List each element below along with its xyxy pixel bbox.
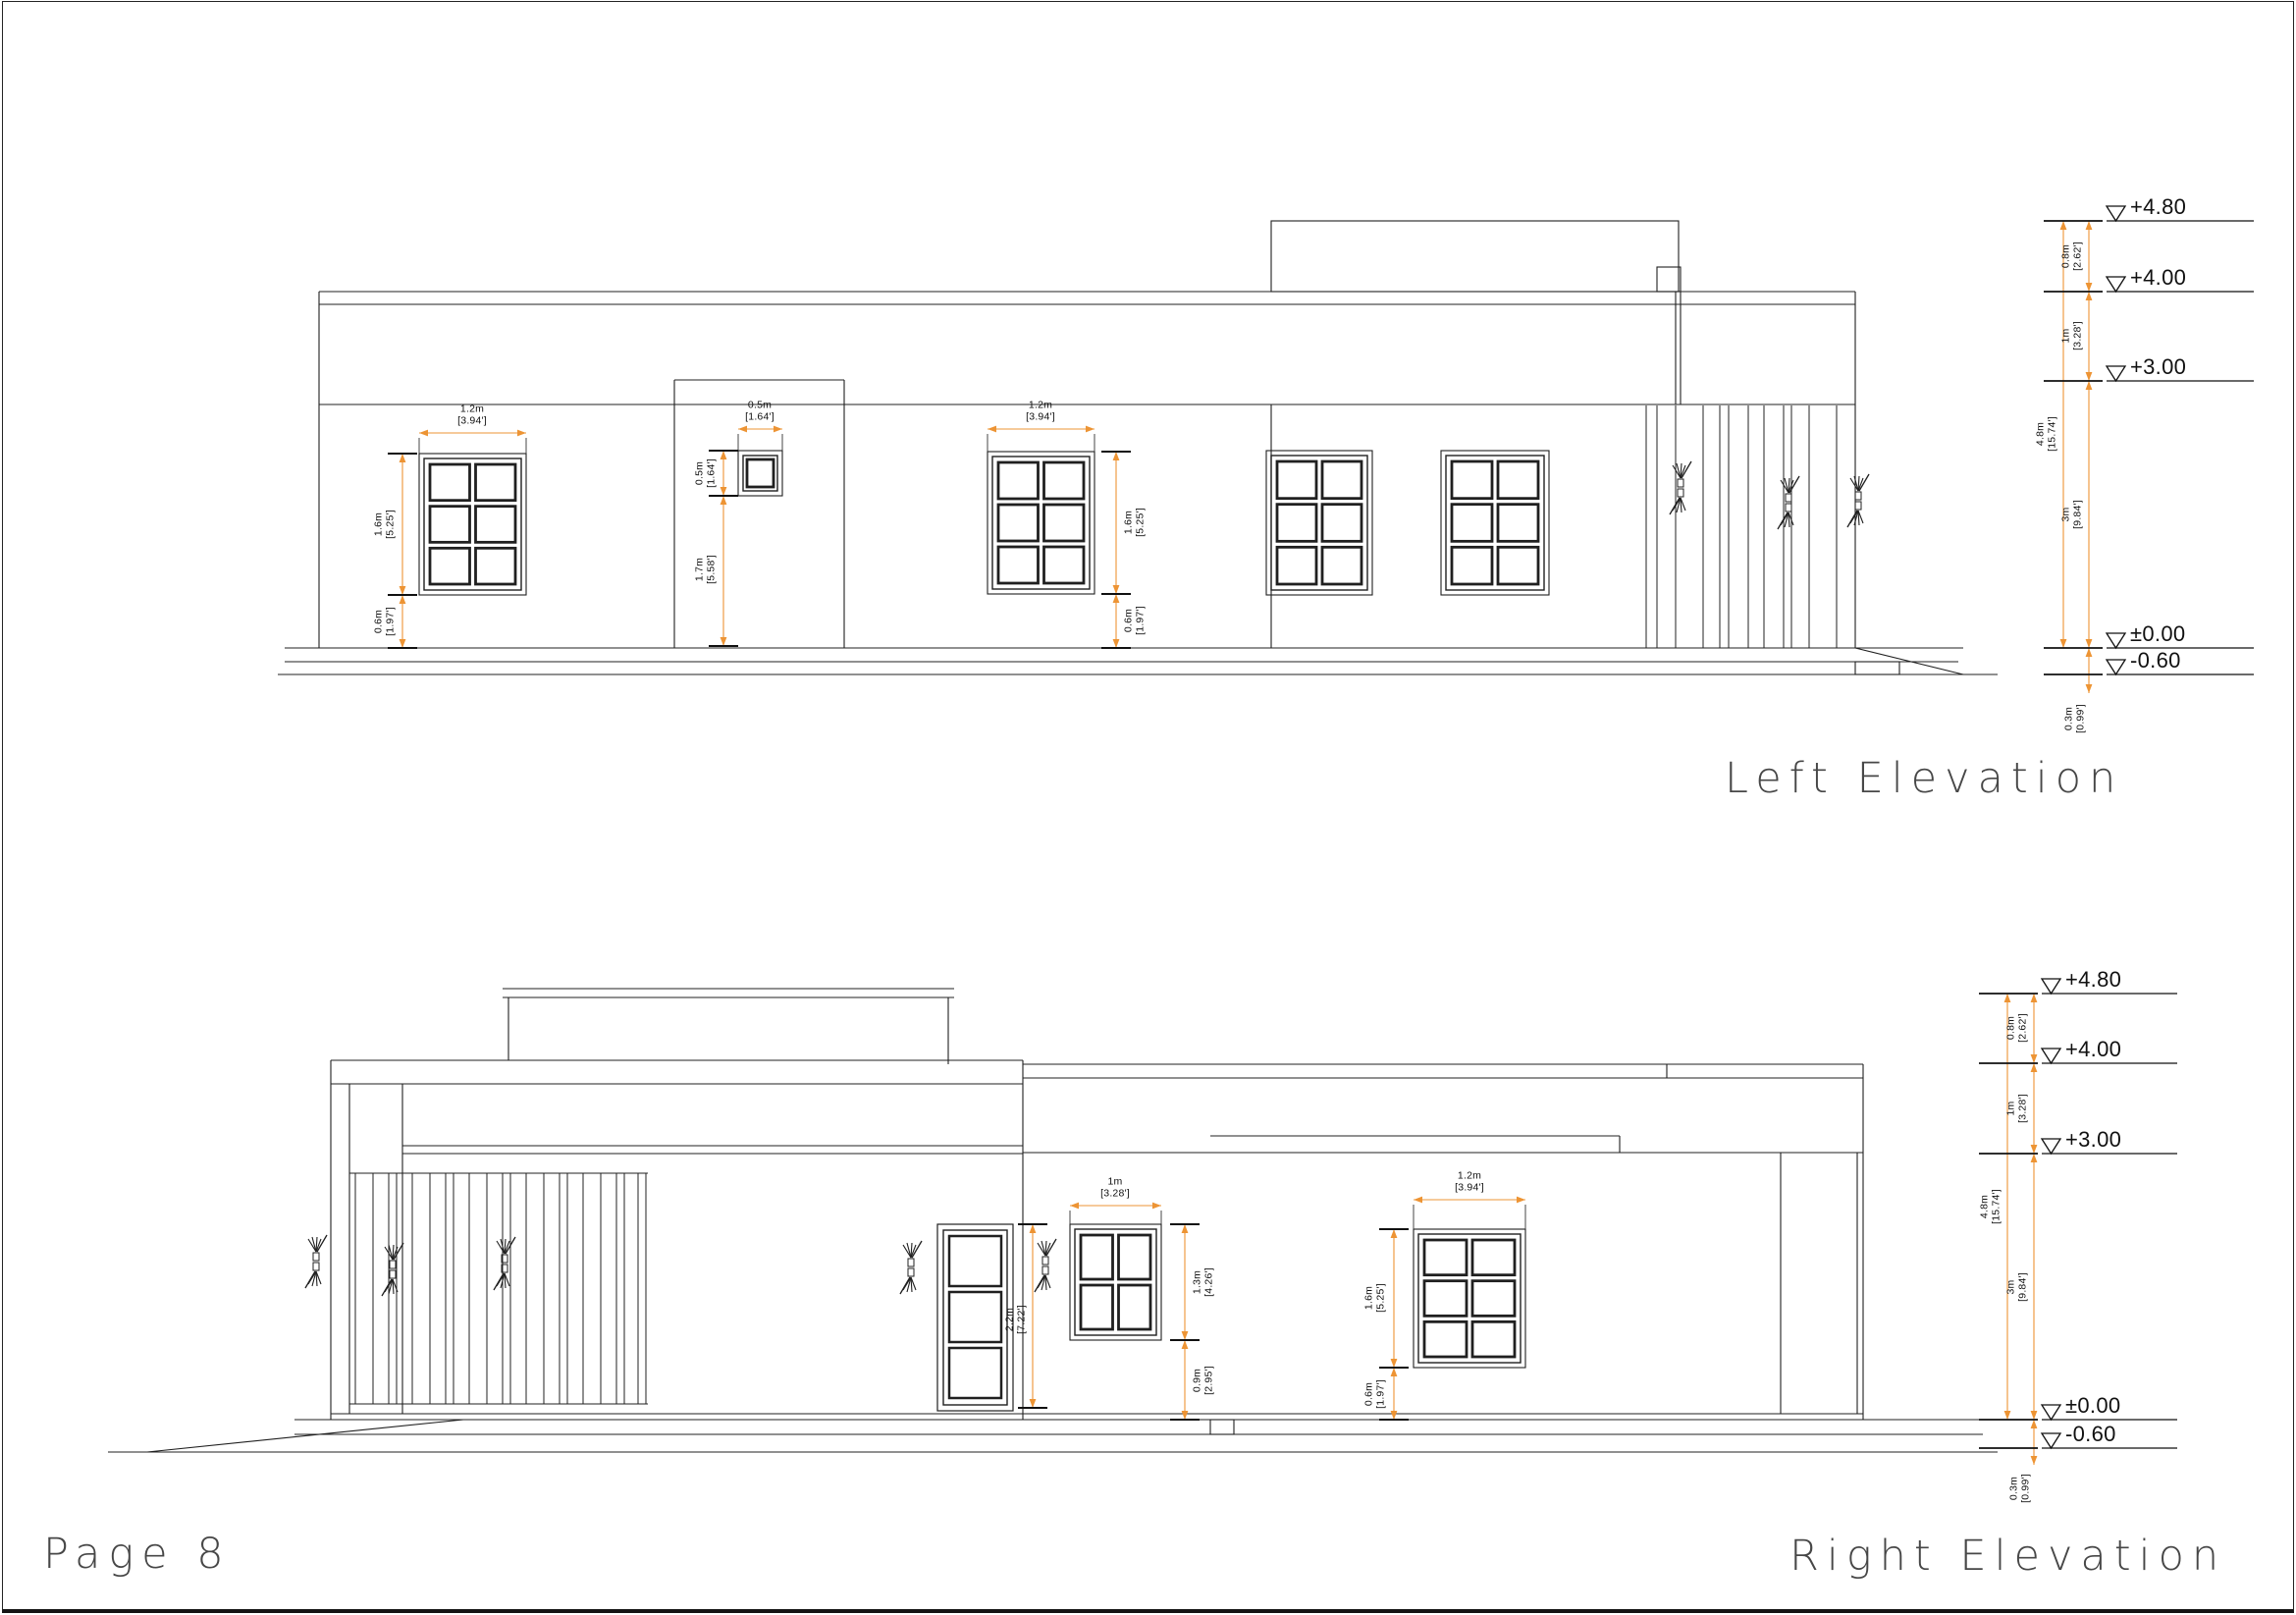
dim-value-ft: [3.94']	[1026, 411, 1055, 423]
dimension-label: 1m[3.28']	[1100, 1176, 1130, 1200]
dim-value-m: 1.2m	[457, 404, 487, 415]
dim-value-m: 1m	[2005, 1094, 2017, 1123]
level-label: +4.80	[2065, 967, 2121, 993]
dim-value-m: 3m	[2005, 1272, 2017, 1302]
dimension-label: 0.8m[2.62']	[2005, 1013, 2029, 1043]
dim-value-m: 0.8m	[2005, 1013, 2017, 1043]
dim-value-ft: [9.84']	[2072, 500, 2084, 529]
dimension-label: 1m[3.28']	[2060, 321, 2084, 350]
dim-value-ft: [2.62']	[2072, 242, 2084, 271]
dimension-label: 0.5m[1.64']	[745, 400, 774, 423]
dimension-label: 0.6m[1.97']	[1363, 1379, 1387, 1409]
dim-value-ft: [5.25']	[1135, 508, 1147, 537]
dim-value-ft: [15.74']	[1991, 1189, 2002, 1224]
right-elevation-title: Right Elevation	[1789, 1532, 2226, 1581]
dim-value-m: 0.5m	[745, 400, 774, 411]
dim-value-ft: [3.94']	[1455, 1182, 1484, 1194]
dim-value-m: 1m	[2060, 321, 2072, 350]
dim-value-m: 0.9m	[1192, 1366, 1203, 1395]
dim-value-ft: [2.95']	[1203, 1366, 1215, 1395]
dimension-label: 1.2m[3.94']	[1026, 400, 1055, 423]
dimension-label: 0.5m[1.64']	[694, 458, 718, 488]
dim-value-ft: [1.97']	[1135, 606, 1147, 635]
dim-value-m: 1.6m	[1123, 508, 1135, 537]
level-label: +4.00	[2130, 265, 2186, 291]
dim-value-m: 0.6m	[1123, 606, 1135, 635]
dim-value-m: 0.6m	[1363, 1379, 1375, 1409]
dimension-label: 0.3m[0.99']	[2063, 704, 2087, 733]
dimension-label: 0.6m[1.97']	[1123, 606, 1147, 635]
level-label: -0.60	[2130, 648, 2181, 673]
dim-value-ft: [4.26']	[1203, 1267, 1215, 1297]
dimension-label: 1.7m[5.58']	[694, 555, 718, 584]
dim-value-m: 4.8m	[2035, 416, 2047, 452]
level-label: ±0.00	[2065, 1393, 2120, 1419]
dim-value-ft: [3.94']	[457, 415, 487, 427]
level-label: +3.00	[2065, 1127, 2121, 1153]
dim-value-m: 2.2m	[1004, 1305, 1016, 1334]
dim-value-m: 3m	[2060, 500, 2072, 529]
dim-value-ft: [1.64']	[745, 411, 774, 423]
dim-value-m: 1.6m	[373, 510, 385, 539]
dimension-label: 1.2m[3.94']	[1455, 1170, 1484, 1194]
dim-value-ft: [15.74']	[2047, 416, 2058, 452]
dimension-label: 3m[9.84']	[2060, 500, 2084, 529]
dimension-label: 0.9m[2.95']	[1192, 1366, 1215, 1395]
drawing-sheet: 1.2m[3.94']1.6m[5.25']0.6m[1.97']0.5m[1.…	[0, 0, 2296, 1615]
dim-value-ft: [5.58']	[706, 555, 718, 584]
dim-value-m: 4.8m	[1979, 1189, 1991, 1224]
dim-value-m: 0.6m	[373, 607, 385, 636]
dim-value-ft: [1.97']	[1375, 1379, 1387, 1409]
dim-value-ft: [3.28']	[2017, 1094, 2029, 1123]
dim-value-m: 0.3m	[2063, 704, 2075, 733]
dimension-label: 3m[9.84']	[2005, 1272, 2029, 1302]
dim-value-ft: [7.22']	[1016, 1305, 1028, 1334]
dimension-label: 0.6m[1.97']	[373, 607, 397, 636]
dim-value-m: 0.8m	[2060, 242, 2072, 271]
dim-value-ft: [1.64']	[706, 458, 718, 488]
dim-value-ft: [2.62']	[2017, 1013, 2029, 1043]
dimension-label: 1.6m[5.25']	[373, 510, 397, 539]
dim-value-ft: [5.25']	[385, 510, 397, 539]
dimension-label: 2.2m[7.22']	[1004, 1305, 1028, 1334]
dimension-label: 1.6m[5.25']	[1123, 508, 1147, 537]
dim-value-ft: [1.97']	[385, 607, 397, 636]
dim-value-m: 0.3m	[2008, 1474, 2020, 1503]
dim-value-m: 0.5m	[694, 458, 706, 488]
dim-value-ft: [0.99']	[2020, 1474, 2032, 1503]
level-label: ±0.00	[2130, 621, 2185, 647]
page-number: Page 8	[43, 1530, 232, 1579]
dim-value-m: 1.7m	[694, 555, 706, 584]
level-label: -0.60	[2065, 1422, 2116, 1447]
dim-value-ft: [3.28']	[1100, 1188, 1130, 1200]
left-elevation-title: Left Elevation	[1725, 754, 2123, 803]
dim-value-ft: [0.99']	[2075, 704, 2087, 733]
dimension-label: 0.3m[0.99']	[2008, 1474, 2032, 1503]
dim-value-ft: [3.28']	[2072, 321, 2084, 350]
dimension-label: 0.8m[2.62']	[2060, 242, 2084, 271]
level-label: +4.80	[2130, 194, 2186, 220]
dimension-label: 1.6m[5.25']	[1363, 1283, 1387, 1313]
annotation-layer: 1.2m[3.94']1.6m[5.25']0.6m[1.97']0.5m[1.…	[0, 0, 2296, 1615]
dimension-label: 1.3m[4.26']	[1192, 1267, 1215, 1297]
dim-value-ft: [9.84']	[2017, 1272, 2029, 1302]
dimension-label: 1.2m[3.94']	[457, 404, 487, 427]
dim-value-m: 1.2m	[1455, 1170, 1484, 1182]
dim-value-m: 1m	[1100, 1176, 1130, 1188]
level-label: +3.00	[2130, 354, 2186, 380]
dimension-label: 4.8m[15.74']	[1979, 1189, 2002, 1224]
dim-value-m: 1.2m	[1026, 400, 1055, 411]
dim-value-m: 1.3m	[1192, 1267, 1203, 1297]
dimension-label: 4.8m[15.74']	[2035, 416, 2058, 452]
level-label: +4.00	[2065, 1037, 2121, 1062]
dim-value-m: 1.6m	[1363, 1283, 1375, 1313]
dimension-label: 1m[3.28']	[2005, 1094, 2029, 1123]
dim-value-ft: [5.25']	[1375, 1283, 1387, 1313]
